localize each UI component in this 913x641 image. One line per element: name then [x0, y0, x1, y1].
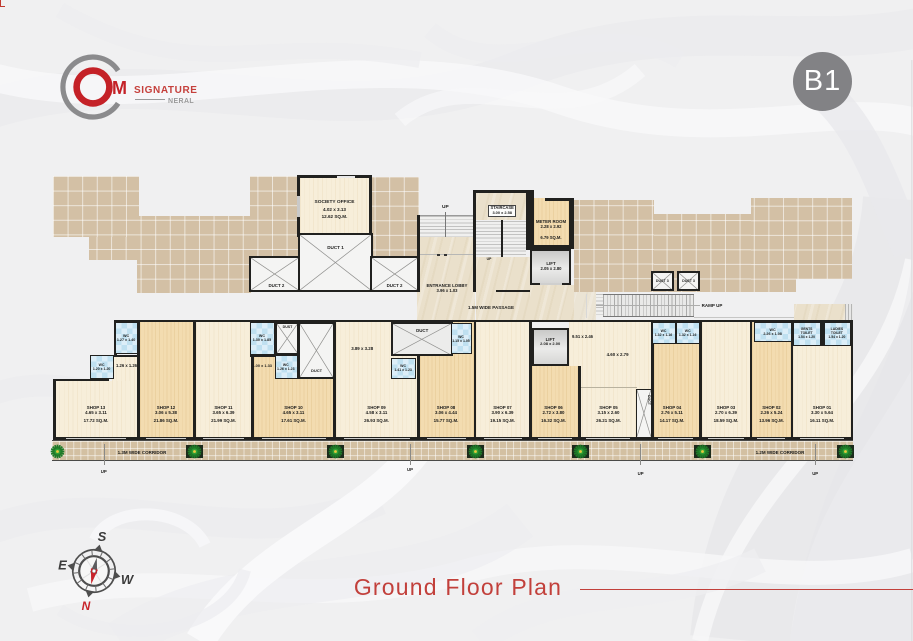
- svg-text:W: W: [121, 572, 135, 587]
- svg-text:S: S: [98, 529, 107, 544]
- svg-text:N: N: [82, 599, 91, 613]
- svg-text:M: M: [112, 78, 127, 98]
- svg-text:E: E: [58, 558, 67, 573]
